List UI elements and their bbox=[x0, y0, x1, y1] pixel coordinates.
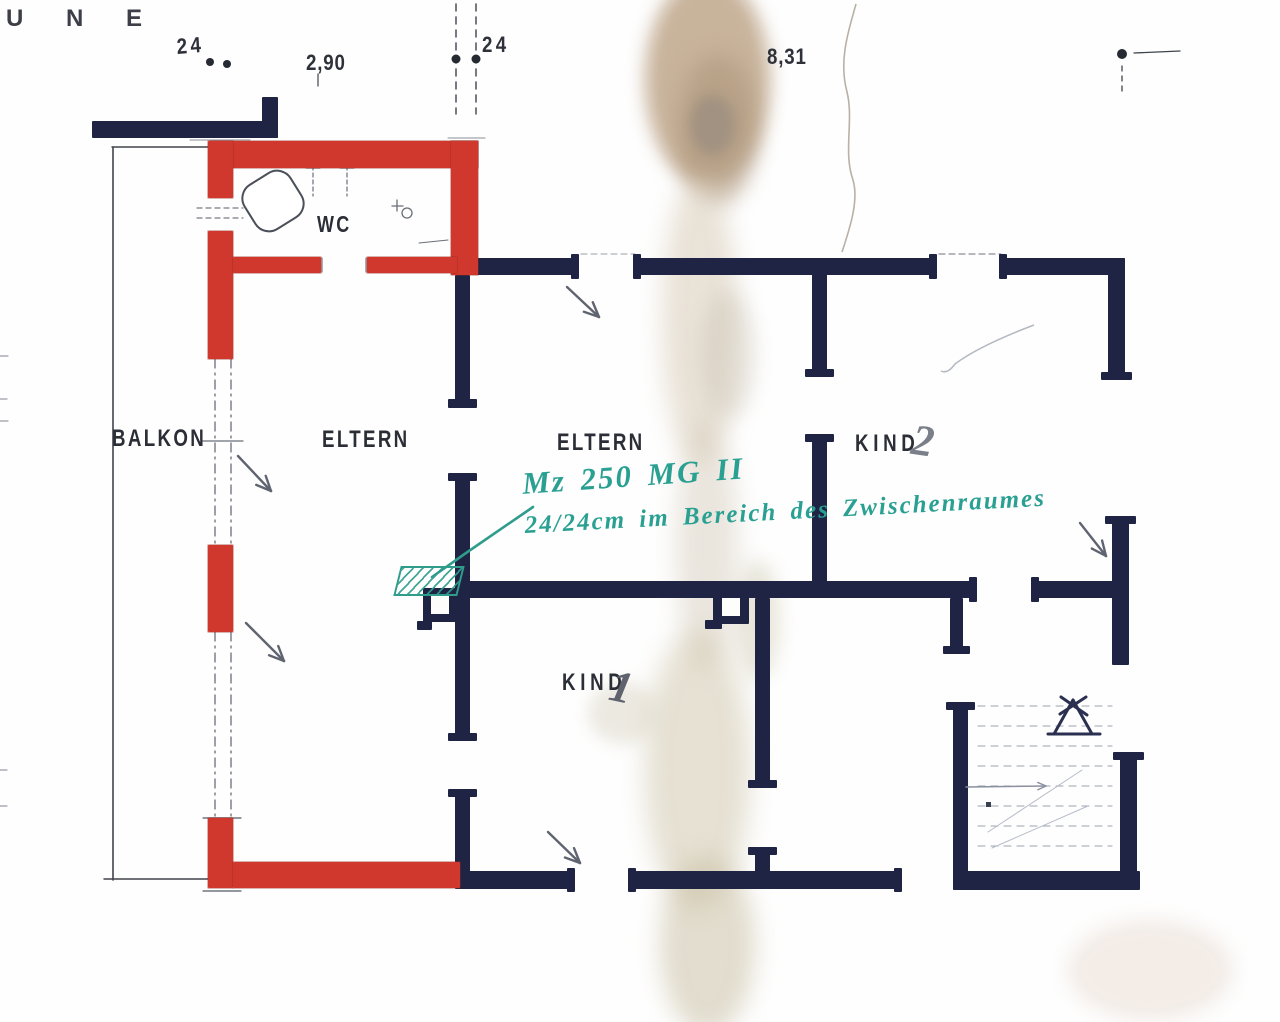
label-room-eltern-east: ELTERN bbox=[557, 431, 645, 455]
label-room-eltern-west: ELTERN bbox=[322, 428, 410, 452]
label-room-kind2-number: 2 bbox=[909, 418, 937, 465]
annotation-text-line1: Mz 250 MG II bbox=[521, 450, 745, 501]
floor-plan: Mz 250 MG II24/24cm im Bereich des Zwisc… bbox=[0, 0, 1280, 1022]
label-layer: Mz 250 MG II24/24cm im Bereich des Zwisc… bbox=[0, 0, 1280, 1022]
label-fragment-une: U N E bbox=[6, 7, 160, 31]
label-dim-24-mid: 24 bbox=[482, 34, 510, 56]
label-dim-24-left: 24 bbox=[176, 34, 205, 58]
label-dim-8-31: 8,31 bbox=[767, 46, 807, 68]
label-room-wc: WC bbox=[317, 213, 352, 236]
annotation-hatch-box bbox=[393, 566, 464, 596]
label-dim-2-90: 2,90 bbox=[306, 52, 346, 74]
label-room-balkon: BALKON bbox=[112, 427, 206, 451]
